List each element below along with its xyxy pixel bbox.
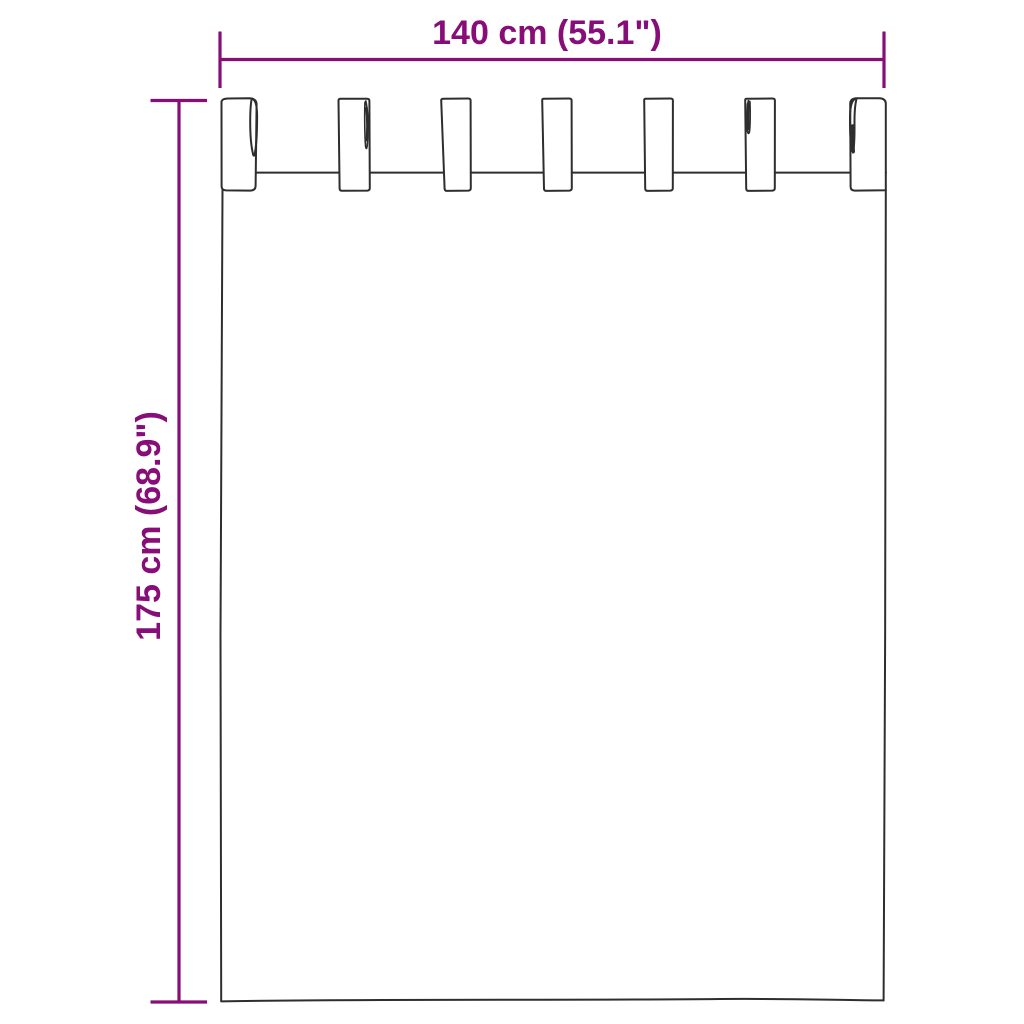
svg-text:140 cm (55.1"): 140 cm (55.1") xyxy=(432,14,662,52)
svg-text:175 cm (68.9"): 175 cm (68.9") xyxy=(130,411,168,641)
